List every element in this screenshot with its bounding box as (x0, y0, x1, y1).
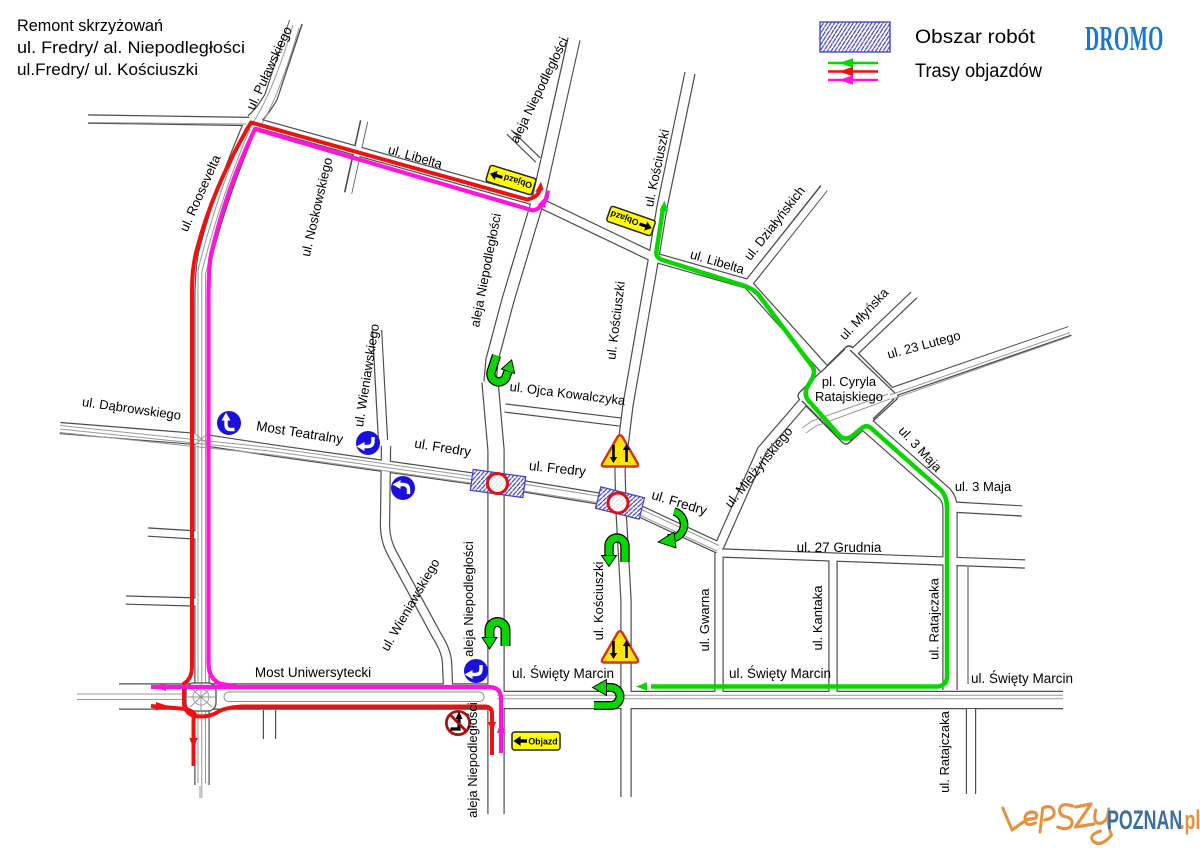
svg-text:Objazd: Objazd (528, 737, 557, 747)
svg-text:ul. Kantaka: ul. Kantaka (810, 585, 825, 651)
svg-text:POZNAN: POZNAN (1107, 804, 1182, 835)
svg-text:.pl: .pl (1180, 804, 1200, 835)
svg-text:DROMO: DROMO (1085, 20, 1164, 58)
svg-text:Most Uniwersytecki: Most Uniwersytecki (255, 665, 371, 680)
svg-text:Obszar robót: Obszar robót (915, 26, 1036, 48)
svg-text:Ratajskiego: Ratajskiego (815, 389, 883, 404)
svg-text:ul. Kościuszki: ul. Kościuszki (591, 562, 606, 641)
svg-text:ul. Ratajczaka: ul. Ratajczaka (927, 577, 942, 659)
svg-text:ul. Ratajczaka: ul. Ratajczaka (937, 710, 952, 792)
svg-text:pl. Cyryla: pl. Cyryla (822, 374, 877, 389)
svg-text:aleja Niepodległości: aleja Niepodległości (461, 541, 476, 657)
svg-text:ul. 3 Maja: ul. 3 Maja (955, 479, 1012, 494)
svg-text:Remont skrzyżowań: Remont skrzyżowań (17, 17, 163, 35)
svg-text:ul.Fredry/ ul. Kościuszki: ul.Fredry/ ul. Kościuszki (17, 61, 198, 79)
svg-text:aleja Niepodległości: aleja Niepodległości (465, 702, 480, 818)
svg-text:ul. Gwarna: ul. Gwarna (697, 588, 712, 652)
svg-text:ul. 27 Grudnia: ul. 27 Grudnia (797, 540, 882, 555)
svg-text:Trasy objazdów: Trasy objazdów (915, 60, 1043, 82)
svg-text:ul. Święty Marcin: ul. Święty Marcin (512, 666, 614, 681)
svg-text:ul. Fredry/ al. Niepodległości: ul. Fredry/ al. Niepodległości (17, 39, 245, 57)
svg-text:ul. Święty Marcin: ul. Święty Marcin (729, 666, 831, 681)
svg-text:ul. Święty Marcin: ul. Święty Marcin (971, 671, 1073, 686)
